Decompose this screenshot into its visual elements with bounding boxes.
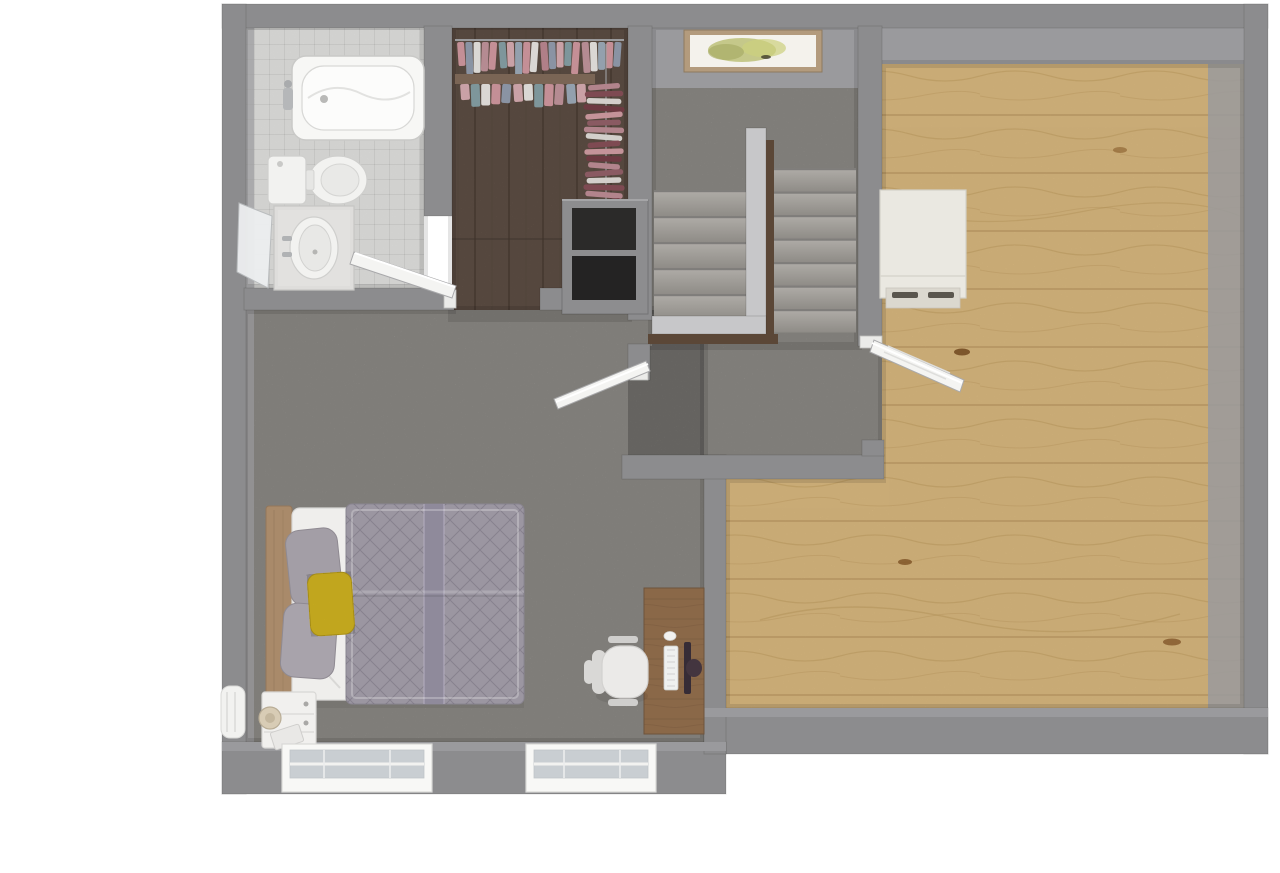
stair-handrail-bottom (648, 334, 778, 344)
monitor-base (686, 659, 702, 677)
shelf-cubby-bottom (572, 256, 636, 300)
wall-left (222, 4, 246, 794)
oakroom-top-wall-face (882, 28, 1244, 64)
wall-bath-bottom (244, 288, 454, 310)
chair-armrest (608, 636, 638, 643)
pillow-yellow (307, 572, 355, 637)
white-cabinet (880, 190, 966, 308)
wall-hall-stub (862, 440, 884, 456)
comforter-fold (424, 504, 444, 704)
wall-bottom-oakroom-face (704, 708, 1268, 717)
stair-handrail-right (766, 140, 774, 344)
stairs-right-flight (774, 168, 856, 333)
sink-faucet (282, 236, 292, 241)
nightstand (259, 692, 316, 750)
wall-top (222, 4, 1268, 28)
chair-seat (602, 646, 648, 698)
wall-pipe (221, 686, 245, 738)
oakroom-right-wall-face (1208, 64, 1244, 708)
window-2 (526, 744, 656, 792)
drawer-knob (304, 702, 309, 707)
closet-shelf-strip (455, 74, 595, 84)
drawer-knob (304, 721, 309, 726)
bed (266, 504, 524, 708)
wall-stair-right (858, 26, 882, 346)
toilet (268, 156, 367, 204)
tub-faucet (283, 88, 293, 110)
keyboard (664, 646, 678, 690)
closet-shelf-unit (562, 200, 648, 314)
tub-drain (320, 95, 328, 103)
shelf-cubby-top (572, 208, 636, 250)
bathtub (283, 56, 424, 140)
bed-comforter (346, 504, 524, 704)
stair-knee-wall-bottom (652, 316, 766, 334)
clothes-rack-side (583, 83, 624, 206)
chair-armrest (608, 699, 638, 706)
stairs-left-flight (654, 190, 746, 320)
wall-bath-closet (424, 26, 452, 216)
stair-knee-wall-center (746, 128, 766, 334)
vanity-sink (274, 206, 354, 290)
toilet-flush-button (277, 161, 283, 167)
wall-right (1244, 4, 1268, 754)
mouse (664, 632, 676, 641)
window-1 (282, 744, 432, 792)
wall-hall-bottom (622, 455, 884, 479)
toilet-tank (268, 156, 306, 204)
picture-frame (684, 30, 822, 72)
shower-panel (237, 203, 272, 288)
floorplan-svg (0, 0, 1280, 873)
floorplan-stage (0, 0, 1280, 873)
